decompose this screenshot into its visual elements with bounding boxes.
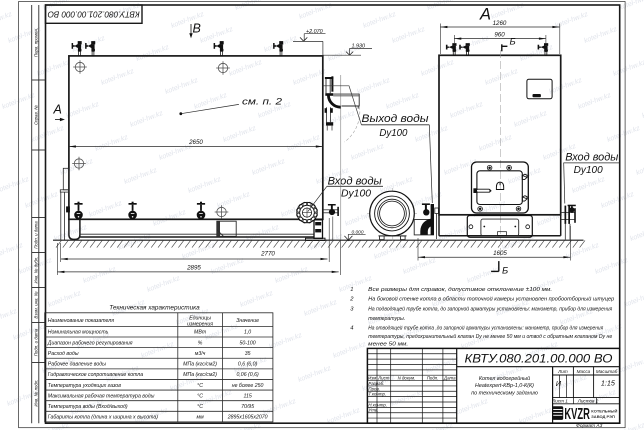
svg-text:Подп. и дата: Подп. и дата	[34, 221, 39, 249]
svg-text:Номинальная мощность: Номинальная мощность	[48, 330, 109, 336]
svg-text:1260: 1260	[493, 20, 507, 27]
svg-text:Расход воды: Расход воды	[48, 351, 79, 357]
svg-text:1:15: 1:15	[601, 379, 616, 388]
svg-text:А: А	[479, 6, 491, 24]
svg-text:МПа (кгс/см2): МПа (кгс/см2)	[183, 372, 217, 378]
svg-text:KVZR: KVZR	[564, 405, 590, 422]
svg-text:Б: Б	[502, 266, 508, 277]
svg-text:мм: мм	[197, 415, 205, 421]
svg-text:Выход воды: Выход воды	[362, 113, 429, 125]
svg-text:Т.контр.: Т.контр.	[368, 392, 386, 397]
svg-text:2650: 2650	[188, 139, 203, 146]
svg-text:Инв. № дубл.: Инв. № дубл.	[34, 256, 39, 283]
svg-text:2895х1605х2070: 2895х1605х2070	[227, 415, 268, 421]
svg-text:Дата: Дата	[443, 376, 456, 381]
svg-text:Наименование показателя: Наименование показателя	[48, 318, 114, 324]
svg-text:0,6 (6,0): 0,6 (6,0)	[238, 362, 258, 368]
svg-text:температуры.: температуры.	[368, 316, 405, 322]
svg-text:50-100: 50-100	[240, 340, 256, 346]
svg-text:70/95: 70/95	[241, 404, 254, 410]
svg-text:Вход воды: Вход воды	[565, 152, 618, 164]
svg-text:0.000: 0.000	[352, 229, 364, 235]
svg-text:Подп. и дата: Подп. и дата	[34, 328, 39, 356]
svg-text:Разраб.: Разраб.	[368, 381, 384, 386]
svg-text:Максимальная рабочая температу: Максимальная рабочая температура воды	[48, 393, 155, 399]
svg-text:Техническая характеристика: Техническая характеристика	[109, 305, 200, 312]
svg-text:ЗАВОД РЭП: ЗАВОД РЭП	[591, 414, 615, 419]
svg-text:Все размеры для справок, допус: Все размеры для справок, допустимое откл…	[368, 287, 552, 293]
svg-text:Изм: Изм	[368, 376, 376, 381]
svg-text:В: В	[193, 22, 201, 36]
svg-text:35: 35	[245, 351, 251, 357]
svg-text:Dy100: Dy100	[379, 128, 407, 139]
svg-text:На боковой стенке котла в обла: На боковой стенке котла в области топочн…	[368, 296, 615, 303]
svg-text:Рабочее давление воды: Рабочее давление воды	[48, 362, 106, 368]
svg-text:4: 4	[350, 326, 353, 332]
svg-text:%: %	[198, 340, 203, 346]
svg-text:Вход воды: Вход воды	[328, 175, 382, 187]
svg-text:2895: 2895	[186, 264, 201, 271]
svg-text:см. п. 2: см. п. 2	[242, 97, 282, 107]
svg-text:менее 50 мм.: менее 50 мм.	[368, 342, 408, 348]
svg-text:Гидравлическое сопротивление к: Гидравлическое сопротивление котла	[48, 372, 143, 378]
svg-text:МВт: МВт	[194, 330, 207, 336]
svg-text:Пров.: Пров.	[368, 386, 380, 391]
svg-text:по техническому заданию: по техническому заданию	[471, 391, 538, 397]
svg-text:°С: °С	[197, 383, 203, 389]
svg-text:КВТУ.080.201.00.000 ВО: КВТУ.080.201.00.000 ВО	[47, 9, 140, 18]
svg-text:Инв. № подл.: Инв. № подл.	[34, 379, 39, 406]
svg-text:N докум.: N докум.	[398, 376, 416, 381]
svg-text:м3/ч: м3/ч	[195, 351, 206, 357]
svg-text:температуры, предохранительный: температуры, предохранительный клапан Dу…	[368, 333, 613, 340]
svg-text:Формат А3: Формат А3	[576, 423, 603, 429]
svg-text:Взам. инв. №: Взам. инв. №	[34, 291, 39, 318]
svg-text:0,06 (0,6): 0,06 (0,6)	[236, 372, 258, 378]
svg-text:Dy100: Dy100	[341, 188, 371, 199]
svg-text:МПа (кгс/см2): МПа (кгс/см2)	[183, 362, 217, 368]
svg-text:Масса: Масса	[577, 369, 591, 374]
svg-text:Dy100: Dy100	[574, 165, 603, 176]
svg-text:115: 115	[243, 393, 251, 399]
svg-text:2770: 2770	[260, 250, 275, 257]
svg-text:°С: °С	[197, 393, 203, 399]
svg-text:Габариты котла (длина х ширина: Габариты котла (длина х ширина х высота)	[48, 415, 158, 421]
svg-text:Котел водогрейный: Котел водогрейный	[479, 375, 530, 382]
svg-text:1605: 1605	[493, 250, 507, 257]
svg-text:960: 960	[494, 32, 505, 39]
svg-text:Лит: Лит	[557, 369, 568, 374]
svg-text:Справ. №: Справ. №	[34, 105, 39, 125]
svg-text:Значение: Значение	[236, 318, 259, 324]
svg-text:Б: Б	[510, 36, 516, 47]
svg-text:КВТУ.080.201.00.000 ВО: КВТУ.080.201.00.000 ВО	[465, 351, 613, 365]
svg-text:°С: °С	[197, 404, 203, 410]
svg-text:Лист: Лист	[377, 376, 390, 381]
svg-text:На отводящей трубе котла ,до з: На отводящей трубе котла ,до запорной ар…	[368, 325, 603, 332]
svg-text:+2.070: +2.070	[306, 29, 323, 35]
svg-text:Н.контр.: Н.контр.	[368, 402, 387, 407]
svg-text:Масштаб: Масштаб	[596, 369, 618, 374]
svg-text:Heatexpert-КВр-1,0-К(К): Heatexpert-КВр-1,0-К(К)	[475, 383, 534, 389]
svg-text:не более 250: не более 250	[232, 383, 264, 389]
svg-text:И: И	[556, 379, 562, 388]
svg-text:Температура уходящих газов: Температура уходящих газов	[48, 383, 121, 389]
svg-text:1: 1	[350, 287, 353, 293]
svg-text:Диапазон рабочего регулировани: Диапазон рабочего регулирования	[47, 340, 133, 346]
svg-text:Подп.: Подп.	[427, 376, 439, 381]
svg-text:Лист 1: Лист 1	[551, 399, 568, 404]
svg-text:На подводящей трубе котла, д: На подводящей трубе котла, до запорной а…	[368, 305, 612, 312]
svg-text:измерения: измерения	[187, 321, 213, 327]
svg-text:Листов 2: Листов 2	[577, 399, 599, 404]
svg-text:1,0: 1,0	[244, 330, 251, 336]
svg-text:Утв.: Утв.	[368, 408, 378, 413]
svg-text:Перв. примен.: Перв. примен.	[34, 28, 39, 57]
svg-text:Температура воды (Вход/выход): Температура воды (Вход/выход)	[48, 404, 128, 410]
svg-text:1.930: 1.930	[352, 44, 366, 50]
svg-text:А: А	[53, 102, 62, 116]
